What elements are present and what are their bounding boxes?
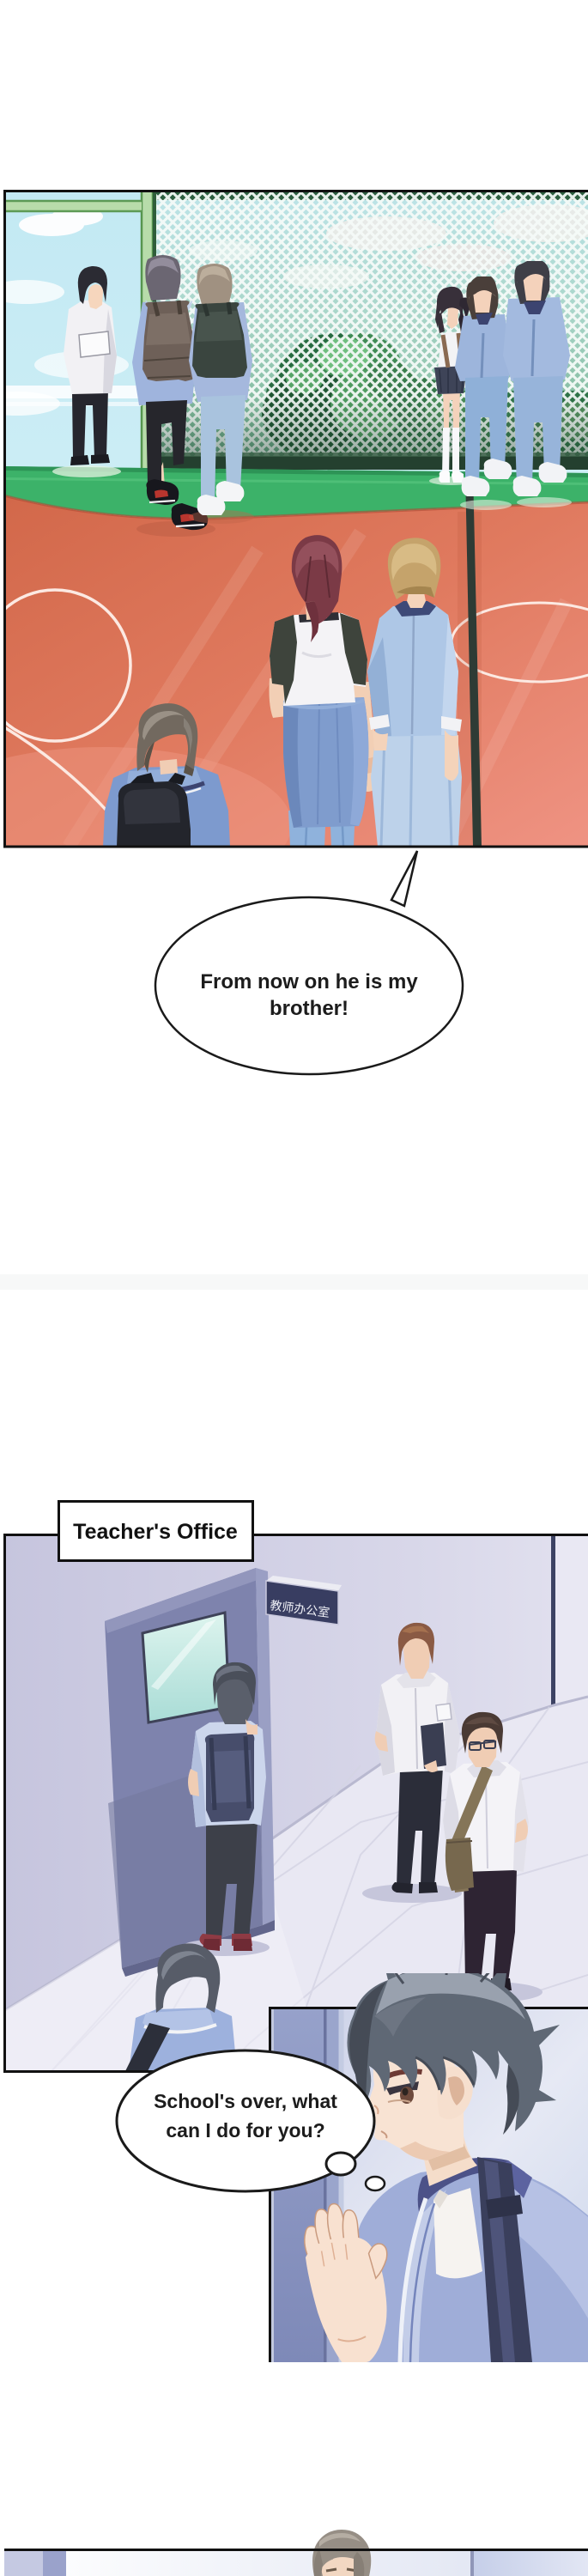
- svg-text:brother!: brother!: [270, 997, 349, 1020]
- svg-text:From now on he is my: From now on he is my: [200, 970, 418, 993]
- svg-text:School's over, what: School's over, what: [154, 2090, 337, 2112]
- svg-text:can I do for you?: can I do for you?: [166, 2119, 324, 2142]
- svg-text:Teacher's Office: Teacher's Office: [73, 1520, 238, 1544]
